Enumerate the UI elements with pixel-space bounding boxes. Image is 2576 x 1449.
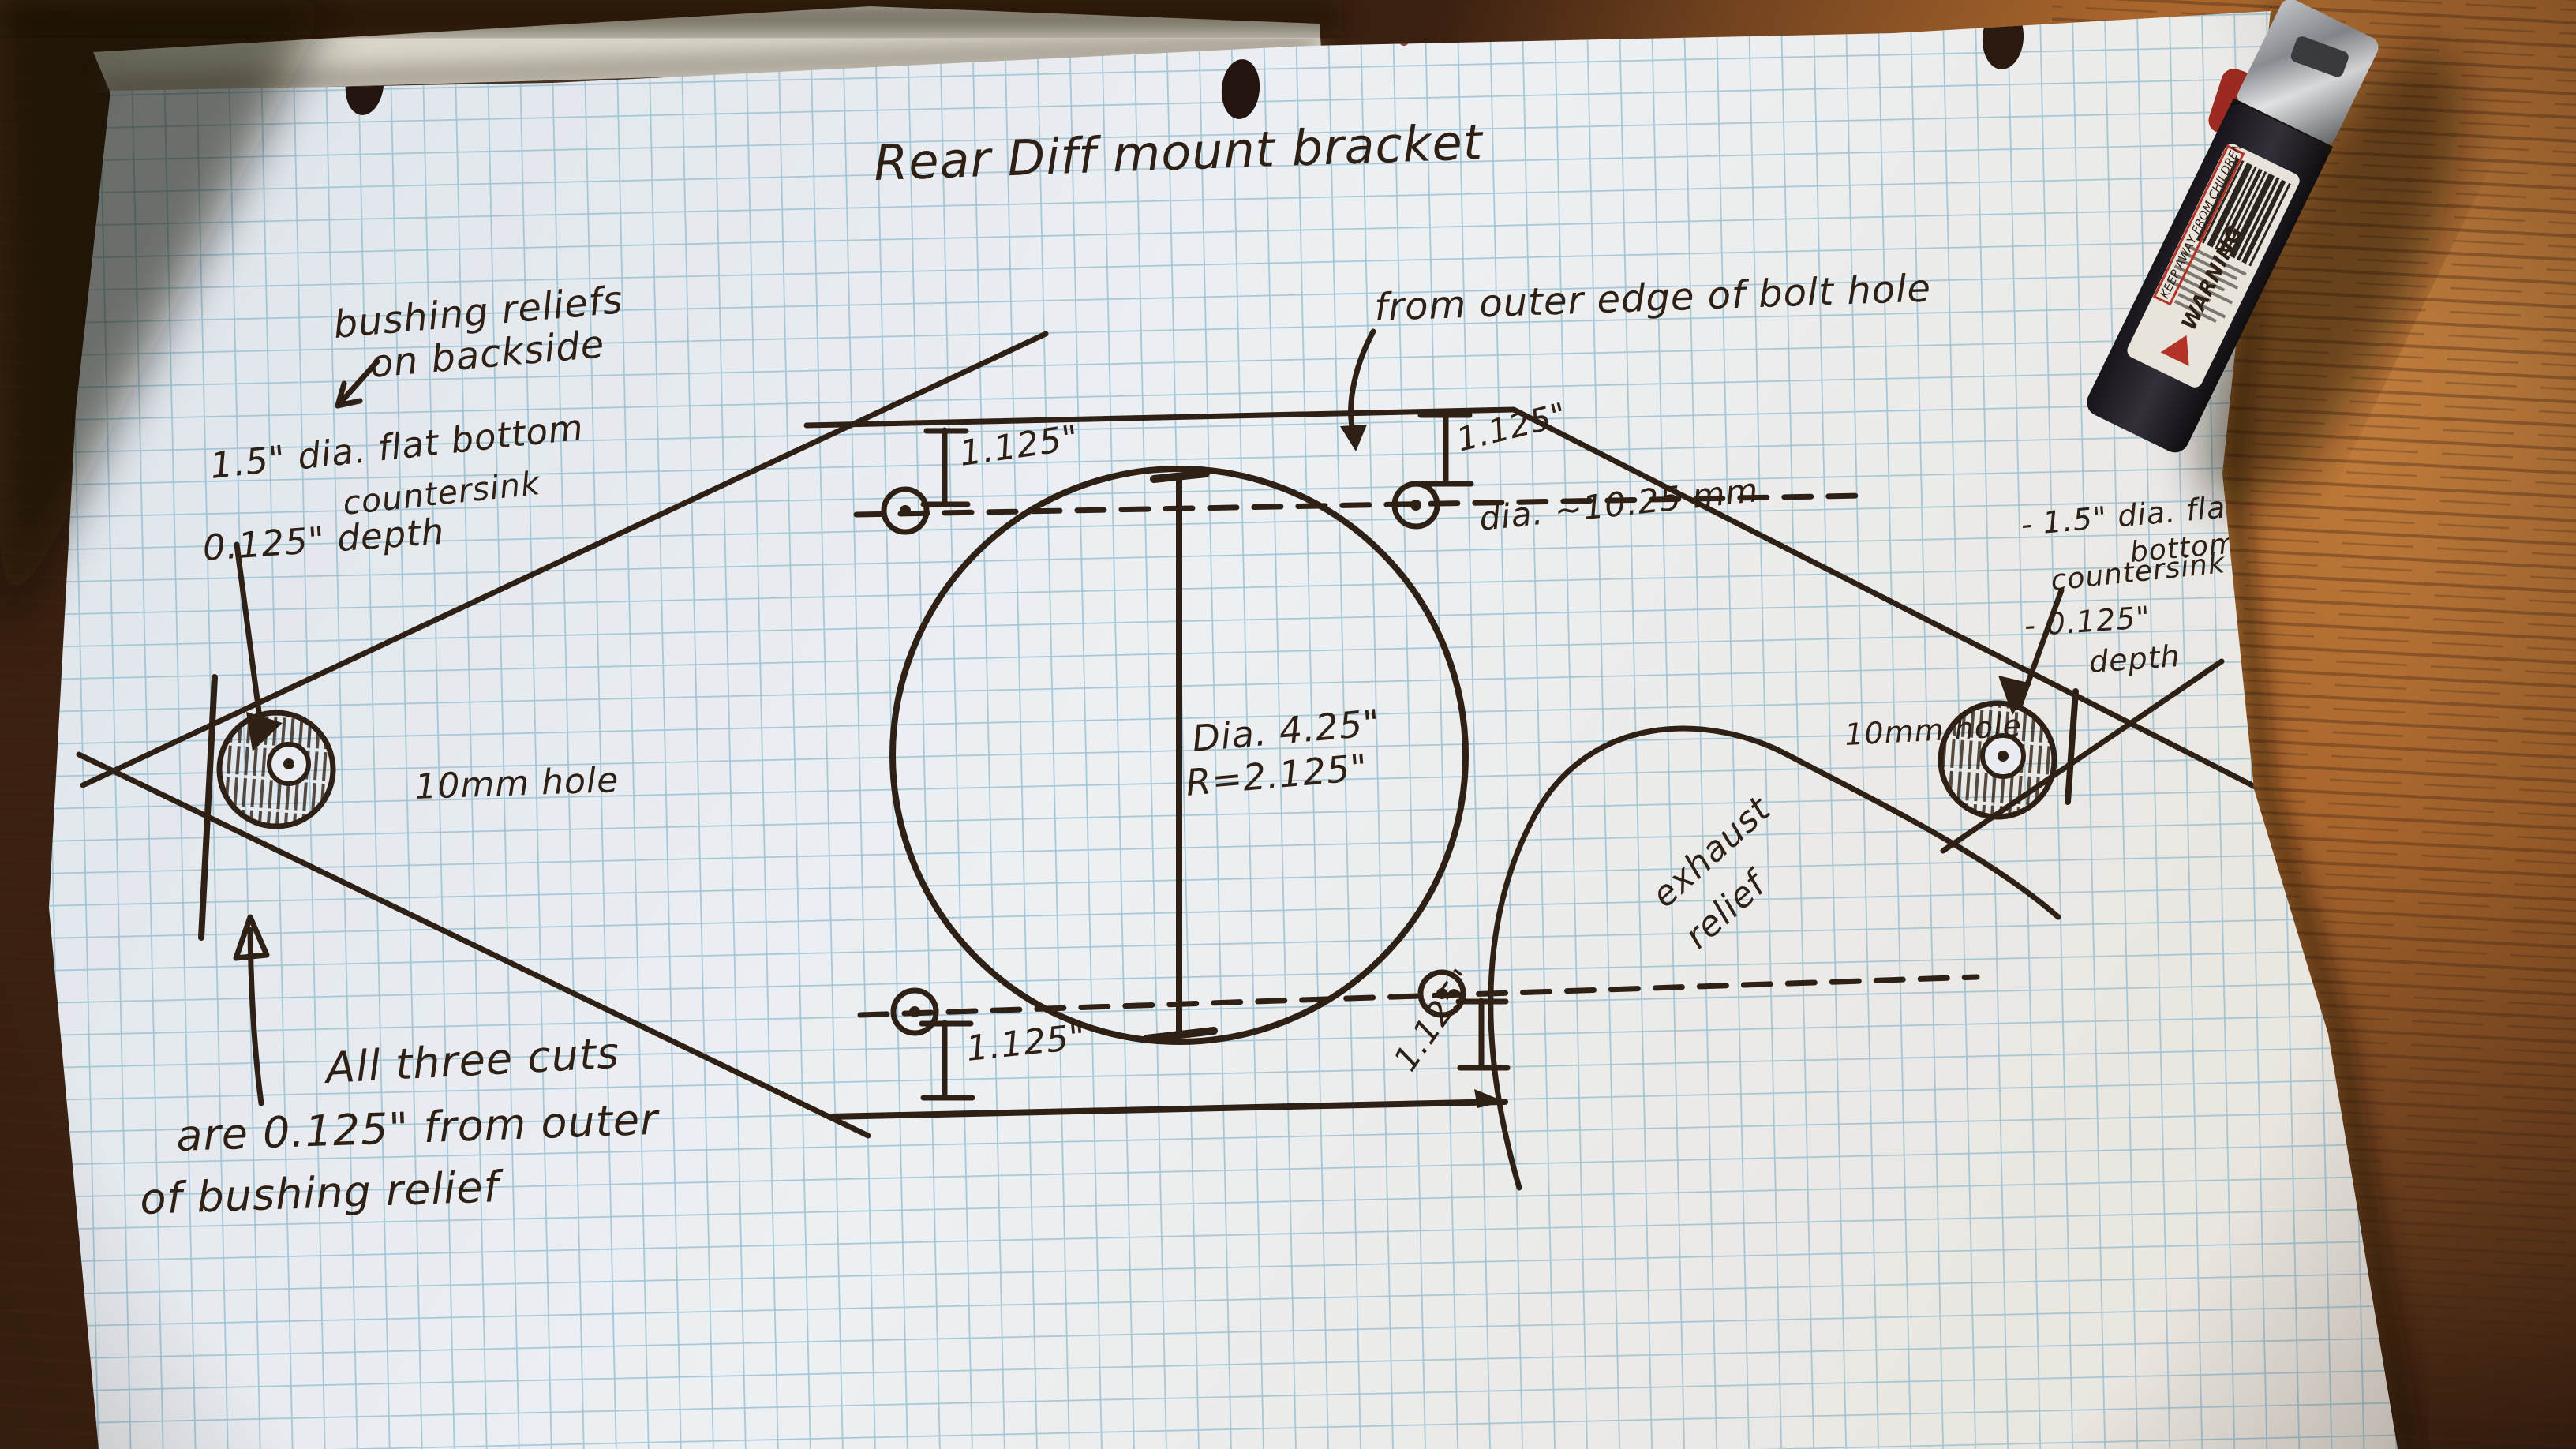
- photo-rear-diff-bracket-sketch: Rear Diff mount bracket bushing reliefs …: [0, 0, 2576, 1449]
- vignette: [0, 0, 2576, 1449]
- top-band-shadow: [0, 0, 1342, 35]
